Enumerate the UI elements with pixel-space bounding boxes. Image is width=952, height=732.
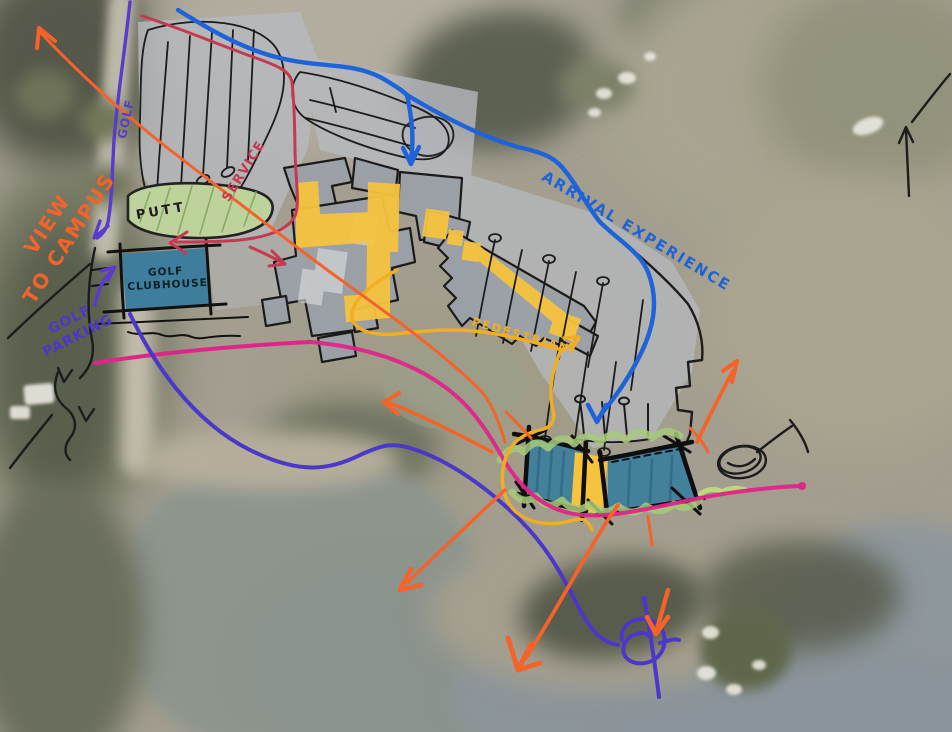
sketch-overlay <box>0 0 952 732</box>
site-sketch-canvas: VIEW TO CAMPUS GOLF SERVICE PUTT GOLF CL… <box>0 0 952 732</box>
courtyard-lawn <box>383 339 527 431</box>
